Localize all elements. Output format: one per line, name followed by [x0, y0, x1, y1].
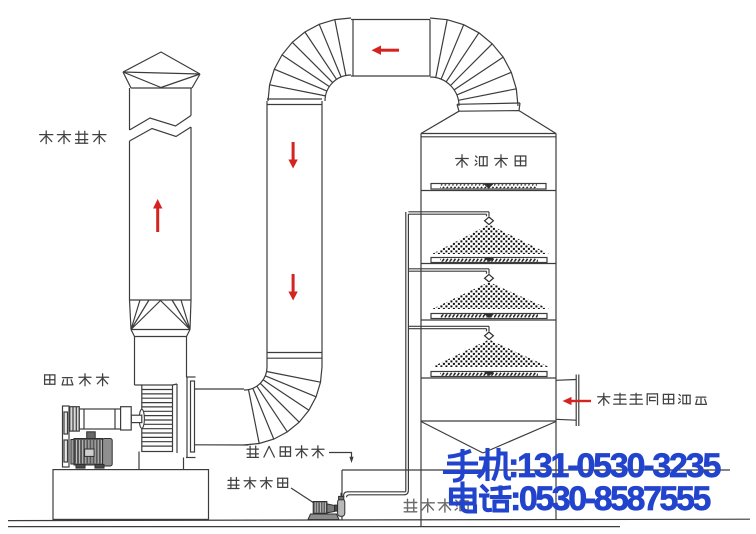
svg-text::0530-8587555: :0530-8587555: [510, 480, 710, 518]
